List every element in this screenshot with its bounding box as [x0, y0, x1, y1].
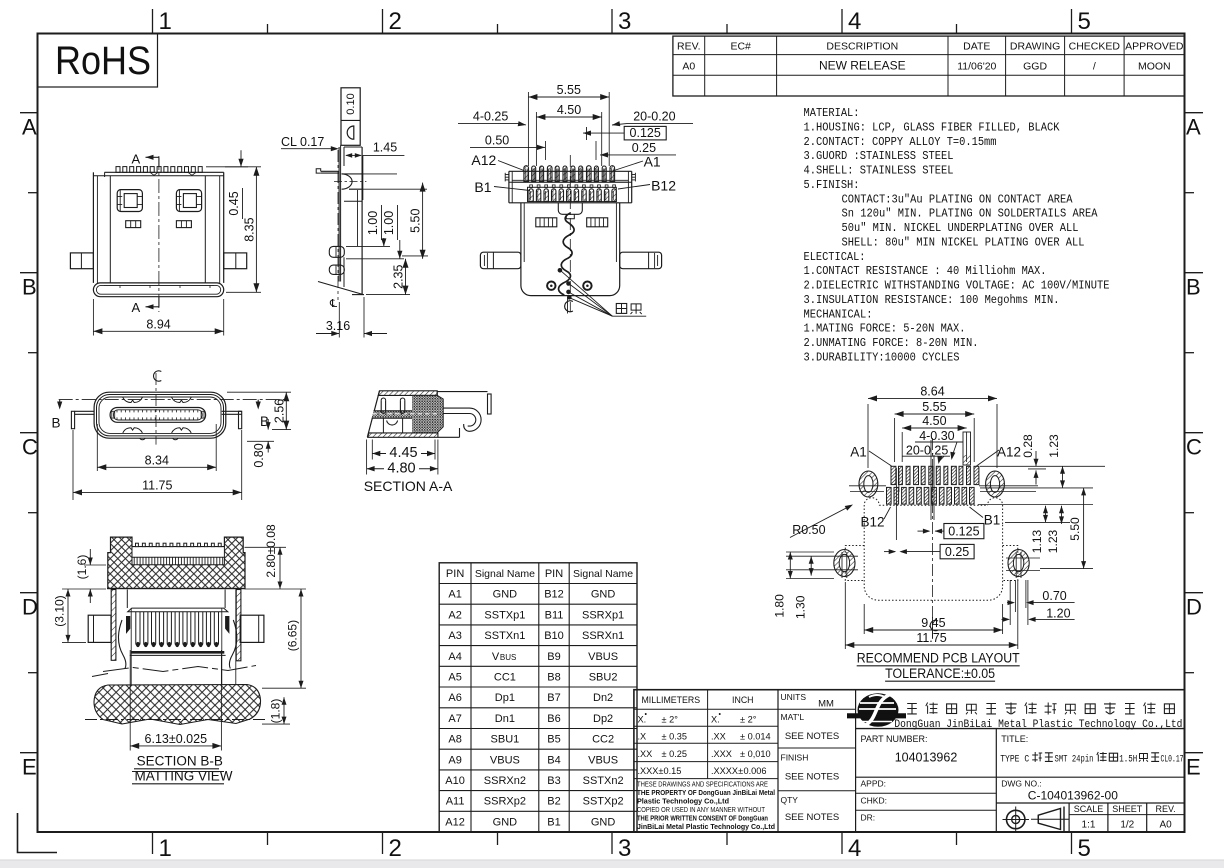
svg-text:TYPE C: TYPE C	[1000, 755, 1029, 766]
svg-text:3.INSULATION RESISTANCE: 100 M: 3.INSULATION RESISTANCE: 100 Megohms MIN…	[804, 294, 1060, 307]
svg-text:GND: GND	[493, 816, 518, 828]
svg-text:1.5H: 1.5H	[1119, 755, 1137, 766]
svg-text:CONTACT:3u″Au PLATING ON CONTA: CONTACT:3u″Au PLATING ON CONTACT AREA	[842, 193, 1073, 206]
svg-text:NEW RELEASE: NEW RELEASE	[819, 59, 906, 73]
svg-text:SHELL: 80u″ MIN NICKEL PLATING: SHELL: 80u″ MIN NICKEL PLATING OVER ALL	[842, 236, 1085, 249]
svg-text:SEE NOTES: SEE NOTES	[785, 731, 839, 742]
svg-text:A10: A10	[445, 775, 465, 787]
svg-text:104013962: 104013962	[895, 751, 958, 765]
svg-text:DR:: DR:	[861, 813, 876, 823]
svg-text:R0.50: R0.50	[792, 523, 825, 537]
svg-text:4: 4	[848, 835, 861, 862]
svg-text:REV.: REV.	[677, 41, 701, 53]
svg-text:B9: B9	[547, 651, 560, 663]
svg-text:Dn1: Dn1	[495, 713, 515, 725]
svg-text:A12: A12	[997, 445, 1021, 460]
svg-text:3.GUORD :STAINLESS STEEL: 3.GUORD :STAINLESS STEEL	[804, 150, 954, 163]
svg-text:0.25: 0.25	[945, 545, 969, 559]
svg-text:B3: B3	[547, 775, 560, 787]
svg-text:(3.10): (3.10)	[53, 595, 67, 626]
svg-text:8.94: 8.94	[146, 317, 170, 331]
svg-text:A0: A0	[682, 61, 695, 73]
svg-text:Dn2: Dn2	[593, 692, 613, 704]
svg-text:SSRXp2: SSRXp2	[484, 796, 526, 808]
svg-text:DESCRIPTION: DESCRIPTION	[826, 41, 898, 53]
svg-text:4-0.25: 4-0.25	[473, 110, 508, 124]
svg-text:A6: A6	[448, 692, 461, 704]
svg-text:SEE NOTES: SEE NOTES	[785, 772, 839, 783]
svg-text:QTY: QTY	[781, 795, 799, 805]
svg-text:Dp1: Dp1	[495, 692, 515, 704]
svg-text:5.FINISH:: 5.FINISH:	[804, 179, 860, 192]
svg-text:1.23: 1.23	[1047, 434, 1061, 458]
svg-text:1:1: 1:1	[1082, 820, 1096, 831]
svg-text:.XX: .XX	[711, 732, 726, 742]
svg-text:2.CONTACT: COPPY ALLOY T=0.15m: 2.CONTACT: COPPY ALLOY T=0.15mm	[804, 136, 997, 149]
svg-text:MOON: MOON	[1138, 61, 1171, 73]
svg-text:0.15: 0.15	[664, 766, 682, 776]
svg-text:2.UNMATING FORCE: 8-20N MIN.: 2.UNMATING FORCE: 8-20N MIN.	[804, 337, 979, 350]
svg-text:SHEET: SHEET	[1112, 804, 1143, 814]
svg-text:± 2°: ± 2°	[740, 715, 757, 725]
svg-text:A1: A1	[448, 589, 461, 601]
svg-text:1.00: 1.00	[366, 211, 380, 235]
svg-text:1.23: 1.23	[1046, 529, 1060, 553]
svg-text:5.50: 5.50	[1068, 517, 1082, 541]
svg-text:A2: A2	[448, 609, 461, 621]
svg-text:SECTION A-A: SECTION A-A	[364, 478, 453, 494]
svg-text:.XXX±: .XXX±	[638, 766, 664, 776]
svg-text:5: 5	[1078, 8, 1091, 35]
svg-text:SSTXp1: SSTXp1	[484, 609, 525, 621]
svg-text:COPIED OR USED IN ANY MANNER W: COPIED OR USED IN ANY MANNER WITHOUT	[637, 807, 766, 814]
svg-text:2.56: 2.56	[272, 399, 286, 423]
svg-text:B12: B12	[544, 589, 564, 601]
svg-text:.X: .X	[638, 732, 647, 742]
svg-text:ELECTICAL:: ELECTICAL:	[804, 251, 866, 264]
svg-text:SSRXn2: SSRXn2	[484, 775, 526, 787]
svg-text:MATTING VIEW: MATTING VIEW	[135, 769, 233, 784]
svg-text:0.10: 0.10	[345, 93, 357, 114]
svg-text:Sn 120u″ MIN. PLATING ON SOLDE: Sn 120u″ MIN. PLATING ON SOLDERTAILS ARE…	[842, 208, 1098, 221]
svg-text:TITLE:: TITLE:	[1001, 734, 1028, 744]
svg-text:A7: A7	[448, 713, 461, 725]
svg-text:0.45: 0.45	[227, 191, 241, 215]
svg-text:E: E	[22, 755, 37, 780]
svg-text:SSTXn2: SSTXn2	[583, 775, 624, 787]
svg-text:1: 1	[159, 835, 172, 862]
svg-text:1/2: 1/2	[1120, 820, 1134, 831]
svg-text:.XX: .XX	[638, 749, 653, 759]
svg-text:1.30: 1.30	[794, 595, 808, 619]
svg-text:A1: A1	[850, 445, 867, 460]
svg-text:0.80: 0.80	[252, 443, 266, 467]
svg-text:4.50: 4.50	[922, 414, 946, 428]
svg-text:MILLIMETERS: MILLIMETERS	[641, 695, 700, 705]
svg-text:SBU2: SBU2	[589, 672, 618, 684]
svg-text:D: D	[22, 595, 38, 620]
svg-text:4.45: 4.45	[389, 445, 417, 461]
svg-text:11.75: 11.75	[916, 631, 946, 645]
svg-text:B11: B11	[545, 609, 564, 621]
svg-text:MECHANICAL:: MECHANICAL:	[804, 308, 873, 321]
svg-text:EC#: EC#	[730, 41, 751, 53]
svg-text:CC2: CC2	[592, 734, 614, 746]
svg-text:B6: B6	[547, 713, 560, 725]
svg-text:± 0.35: ± 0.35	[662, 732, 687, 742]
svg-text:APPD:: APPD:	[861, 779, 887, 789]
svg-text:SSRXn1: SSRXn1	[582, 630, 624, 642]
svg-text:(6.65): (6.65)	[286, 620, 300, 651]
svg-text:1.20: 1.20	[1046, 606, 1070, 620]
svg-text:INCH: INCH	[732, 695, 754, 705]
svg-text:4.50: 4.50	[557, 103, 581, 117]
svg-text:VBUS: VBUS	[588, 754, 618, 766]
svg-text:4.SHELL: STAINLESS STEEL: 4.SHELL: STAINLESS STEEL	[804, 165, 954, 178]
svg-text:TOLERANCE:±0.05: TOLERANCE:±0.05	[885, 666, 995, 681]
svg-text:GND: GND	[591, 589, 616, 601]
svg-text:50u″ MIN. NICKEL UNDERPLATING: 50u″ MIN. NICKEL UNDERPLATING OVER ALL	[842, 222, 1079, 235]
svg-text:B1: B1	[547, 816, 560, 828]
svg-text:SECTION B-B: SECTION B-B	[137, 754, 223, 769]
svg-text:A: A	[132, 152, 141, 167]
svg-text:(1.8): (1.8)	[269, 699, 283, 724]
svg-text:VBUS: VBUS	[490, 754, 520, 766]
svg-text:3: 3	[618, 8, 631, 35]
svg-text:MM: MM	[818, 699, 834, 710]
svg-text:5: 5	[1078, 835, 1091, 862]
svg-text:± 2°: ± 2°	[662, 715, 679, 725]
svg-text:A8: A8	[448, 734, 461, 746]
svg-text:.XXXX±: .XXXX±	[711, 766, 743, 776]
svg-text:± 0.014: ± 0.014	[740, 732, 771, 742]
svg-text:B2: B2	[547, 796, 560, 808]
svg-text:MAT'L: MAT'L	[781, 712, 805, 722]
svg-text:THE PRIOR WRITTEN CONSENT OF D: THE PRIOR WRITTEN CONSENT OF DongGuan	[637, 816, 768, 823]
svg-text:FINISH: FINISH	[781, 753, 809, 763]
svg-text:CL0.17: CL0.17	[1161, 755, 1184, 766]
svg-text:± 0,010: ± 0,010	[740, 749, 771, 759]
svg-text:JinBiLai Metal Plastic Technol: JinBiLai Metal Plastic Technology Co.,Lt…	[637, 824, 775, 831]
svg-text:CC1: CC1	[494, 672, 516, 684]
svg-text:GND: GND	[493, 589, 518, 601]
svg-text:APPROVED: APPROVED	[1125, 41, 1184, 53]
svg-text:Signal Name: Signal Name	[475, 568, 535, 580]
svg-text:B: B	[22, 275, 37, 300]
svg-text:CHKD:: CHKD:	[861, 796, 887, 806]
svg-text:A12: A12	[445, 816, 465, 828]
svg-text:1: 1	[159, 8, 172, 35]
svg-text:PART NUMBER:: PART NUMBER:	[861, 734, 928, 744]
svg-text:1.00: 1.00	[382, 211, 396, 235]
svg-text:± 0.25: ± 0.25	[662, 749, 687, 759]
svg-text:SSTXn1: SSTXn1	[484, 630, 525, 642]
svg-text:2.35: 2.35	[392, 264, 406, 288]
svg-text:℄: ℄	[329, 298, 337, 310]
svg-text:A: A	[132, 300, 141, 315]
svg-text:5.55: 5.55	[557, 83, 581, 97]
svg-text:3.16: 3.16	[326, 319, 350, 333]
svg-text:A: A	[22, 115, 37, 140]
svg-text:SEE NOTES: SEE NOTES	[785, 812, 839, 823]
svg-text:5.50: 5.50	[409, 208, 423, 232]
svg-text:CHECKED: CHECKED	[1069, 41, 1121, 53]
svg-text:1.80: 1.80	[773, 594, 787, 618]
svg-text:6.13±0.025: 6.13±0.025	[145, 732, 208, 746]
svg-text:B4: B4	[547, 754, 560, 766]
svg-text:B8: B8	[547, 672, 560, 684]
svg-text:Signal Name: Signal Name	[573, 568, 633, 580]
svg-text:SSRXp1: SSRXp1	[582, 609, 624, 621]
svg-text:0.50: 0.50	[485, 133, 509, 147]
svg-text:8.34: 8.34	[145, 453, 169, 467]
svg-text:20-0.25: 20-0.25	[906, 443, 948, 457]
svg-text:8.35: 8.35	[242, 217, 256, 241]
svg-text:B: B	[52, 416, 61, 431]
svg-text:SBU1: SBU1	[491, 734, 520, 746]
svg-text:2: 2	[389, 8, 402, 35]
svg-text:V: V	[492, 651, 500, 663]
svg-text:A1: A1	[644, 154, 661, 170]
svg-text:3.DURABILITY:10000 CYCLES: 3.DURABILITY:10000 CYCLES	[804, 352, 960, 365]
svg-text:20-0.20: 20-0.20	[633, 110, 675, 124]
svg-text:1.45: 1.45	[373, 141, 397, 155]
svg-text:Plastic Technology Co.,Ltd: Plastic Technology Co.,Ltd	[637, 799, 729, 806]
svg-text:4: 4	[848, 8, 861, 35]
svg-text:MATERIAL:: MATERIAL:	[804, 107, 860, 120]
svg-text:11/06'20: 11/06'20	[957, 61, 996, 73]
svg-text:B12: B12	[651, 178, 676, 194]
svg-text:/: /	[1093, 61, 1096, 73]
svg-text:RECOMMEND PCB LAYOUT: RECOMMEND PCB LAYOUT	[857, 651, 1020, 666]
svg-text:1.CONTACT RESISTANCE : 40 Mill: 1.CONTACT RESISTANCE : 40 Milliohm MAX.	[804, 265, 1047, 278]
svg-text:B: B	[1186, 275, 1201, 300]
svg-text:5.55: 5.55	[922, 400, 946, 414]
svg-text:E: E	[1186, 755, 1201, 780]
svg-text:PIN: PIN	[545, 568, 563, 580]
svg-text:DATE: DATE	[963, 41, 990, 53]
svg-text:RoHS: RoHS	[55, 39, 151, 83]
svg-text:C: C	[22, 435, 38, 460]
svg-text:A11: A11	[446, 796, 465, 808]
svg-text:VBUS: VBUS	[588, 651, 618, 663]
svg-text:4.80: 4.80	[387, 460, 415, 476]
svg-text:C: C	[1186, 435, 1202, 460]
svg-text:SCALE: SCALE	[1074, 804, 1104, 814]
svg-text:B7: B7	[547, 692, 560, 704]
svg-text:1.MATING FORCE: 5-20N MAX.: 1.MATING FORCE: 5-20N MAX.	[804, 323, 966, 336]
svg-text:UNITS: UNITS	[781, 692, 807, 702]
svg-text:1.13: 1.13	[1030, 529, 1044, 553]
svg-text:0.125: 0.125	[630, 126, 661, 140]
svg-text:A4: A4	[448, 651, 461, 663]
svg-text:A12: A12	[471, 152, 496, 168]
svg-text:THE PROPERTY OF DongGuan JinBi: THE PROPERTY OF DongGuan JinBiLai Metal	[637, 790, 775, 797]
svg-text:Dp2: Dp2	[593, 713, 613, 725]
svg-text:A3: A3	[448, 630, 461, 642]
svg-text:GND: GND	[591, 816, 616, 828]
svg-text:0.28: 0.28	[1021, 434, 1035, 458]
svg-text:B1: B1	[474, 179, 491, 195]
svg-text:A: A	[1186, 115, 1201, 140]
svg-text:9.45: 9.45	[921, 616, 945, 630]
svg-text:0.70: 0.70	[1042, 589, 1066, 603]
svg-text:DRAWING: DRAWING	[1010, 41, 1060, 53]
svg-text:(1.6): (1.6)	[75, 555, 89, 580]
svg-text:0.125: 0.125	[948, 525, 979, 539]
svg-text:C-104013962-00: C-104013962-00	[1028, 789, 1118, 803]
svg-text:REV.: REV.	[1156, 804, 1176, 814]
svg-text:SMT 24pin: SMT 24pin	[1055, 754, 1094, 766]
svg-text:CL 0.17: CL 0.17	[281, 135, 324, 149]
svg-text:BUS: BUS	[500, 653, 516, 662]
svg-text:A9: A9	[448, 754, 461, 766]
svg-text:0.006: 0.006	[744, 766, 767, 776]
svg-text:B10: B10	[544, 630, 564, 642]
svg-text:8.64: 8.64	[920, 384, 944, 398]
svg-text:A5: A5	[448, 672, 461, 684]
svg-text:11.75: 11.75	[142, 478, 172, 492]
svg-text:3: 3	[618, 835, 631, 862]
svg-text:PIN: PIN	[446, 568, 464, 580]
svg-text:B1: B1	[984, 513, 1001, 528]
svg-text:GGD: GGD	[1023, 61, 1047, 73]
svg-text:2: 2	[389, 835, 402, 862]
svg-text:SSTXp2: SSTXp2	[583, 796, 624, 808]
svg-text:4-0.30: 4-0.30	[919, 429, 954, 443]
svg-text:B5: B5	[547, 734, 560, 746]
svg-text:2.DIELECTRIC WITHSTANDING VOLT: 2.DIELECTRIC WITHSTANDING VOLTAGE: AC 10…	[804, 280, 1110, 293]
svg-text:2.80±0.08: 2.80±0.08	[264, 524, 278, 578]
svg-text:1.HOUSING: LCP, GLASS FIBER FI: 1.HOUSING: LCP, GLASS FIBER FILLED, BLAC…	[804, 121, 1060, 134]
svg-text:.XXX: .XXX	[711, 749, 732, 759]
svg-text:DWG NO.:: DWG NO.:	[1001, 779, 1042, 789]
svg-text:A0: A0	[1159, 820, 1172, 831]
svg-text:B12: B12	[861, 515, 885, 530]
svg-text:THESE DRAWINGS AND SPECIFICATI: THESE DRAWINGS AND SPECIFICATIONS ARE	[637, 782, 768, 789]
svg-text:D: D	[1186, 595, 1202, 620]
